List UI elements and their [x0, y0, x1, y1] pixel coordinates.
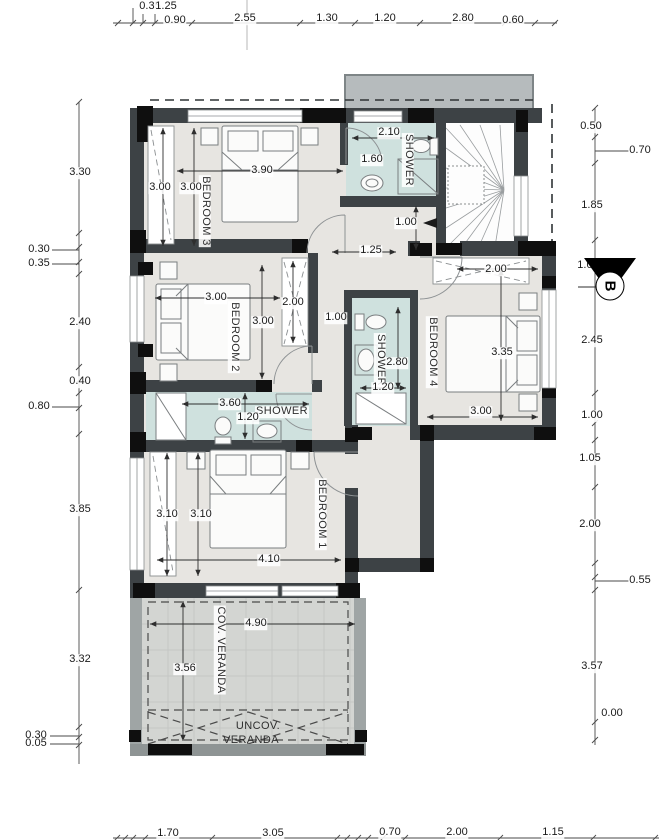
dim-right-5: 1.00: [580, 410, 603, 422]
dim-right-1: 0.70: [628, 145, 651, 157]
dim-left-6: 3.85: [68, 504, 91, 516]
dim-bedroom4-depth: 3.35: [490, 347, 513, 359]
uncov-veranda-label-line2: VERANDA: [222, 735, 280, 747]
dim-stair-width: 1.00: [394, 217, 417, 229]
section-marker-letter: B: [602, 281, 619, 292]
dim-bottom-0: 1.70: [156, 828, 179, 840]
dim-bedroom4-width: 3.00: [469, 406, 492, 418]
dim-top-6: 2.80: [451, 13, 474, 25]
dim-right-4: 2.45: [580, 335, 603, 347]
dim-left-5: 0.80: [27, 401, 50, 413]
dim-shower-mid-width: 1.20: [371, 382, 394, 394]
dim-right-0: 0.50: [579, 121, 602, 133]
bedroom-1-label: BEDROOM 1: [315, 478, 327, 550]
dim-left-2: 0.35: [27, 258, 50, 270]
dim-left-3: 2.40: [68, 317, 91, 329]
shower-bottom-label: SHOWER: [255, 406, 309, 418]
dim-right-10: 0.00: [600, 708, 623, 720]
dim-bedroom2-width: 3.00: [204, 292, 227, 304]
dim-left-7: 3.32: [68, 654, 91, 666]
dim-left-0: 3.30: [68, 167, 91, 179]
dim-right-7: 2.00: [578, 519, 601, 531]
dim-bedroom2-depth: 3.00: [251, 316, 274, 328]
section-marker-b: B: [578, 250, 648, 310]
dim-hall-opening: 1.25: [359, 245, 382, 257]
dim-right-8: 0.55: [628, 575, 651, 587]
dim-top-1: 1.25: [154, 1, 177, 13]
dim-left-9: 0.05: [24, 738, 47, 750]
dim-corridor-width: 1.00: [324, 312, 347, 324]
dim-bedroom2-closet-depth: 2.00: [281, 297, 304, 309]
dim-bedroom1-depth-b: 3.10: [189, 509, 212, 521]
dim-bedroom3-depth-a: 3.00: [148, 182, 171, 194]
dim-bottom-4: 1.15: [541, 827, 564, 839]
dim-top-4: 1.30: [315, 13, 338, 25]
dim-shower-top-width: 2.10: [377, 127, 400, 139]
dim-top-2: 0.90: [163, 15, 186, 27]
dim-left-1: 0.30: [27, 244, 50, 256]
floor-plan: BEDROOM 3 BEDROOM 2 BEDROOM 1 BEDROOM 4 …: [0, 0, 665, 840]
dim-bedroom3-width: 3.90: [250, 165, 273, 177]
dim-shower-bottom-depth: 1.20: [236, 412, 259, 424]
dim-bedroom3-depth-b: 3.00: [179, 182, 202, 194]
cov-veranda-label: COV. VERANDA: [214, 606, 226, 695]
dim-right-2: 1.85: [580, 200, 603, 212]
dim-right-9: 3.57: [580, 661, 603, 673]
bedroom-4-label: BEDROOM 4: [426, 316, 438, 388]
dim-shower-mid-depth: 2.80: [385, 357, 408, 369]
dim-left-4: 0.40: [68, 376, 91, 388]
dim-right-6: 1.05: [578, 453, 601, 465]
dim-veranda-depth: 3.56: [173, 663, 196, 675]
dim-bedroom4-closet-width: 2.00: [484, 264, 507, 276]
dim-bottom-3: 2.00: [445, 827, 468, 839]
shower-mid-label: SHOWER: [374, 333, 386, 387]
shower-top-label: SHOWER: [402, 133, 414, 187]
dim-shower-bottom-width: 3.60: [218, 398, 241, 410]
uncov-veranda-label-line1: UNCOV.: [235, 721, 281, 733]
dim-bottom-2: 0.70: [378, 827, 401, 839]
dim-top-3: 2.55: [233, 13, 256, 25]
dim-shower-top-depth: 1.60: [360, 154, 383, 166]
dim-top-5: 1.20: [373, 13, 396, 25]
dim-bedroom1-depth-a: 3.10: [155, 509, 178, 521]
floor-plan-drawing: [0, 0, 665, 840]
bedroom-2-label: BEDROOM 2: [228, 301, 240, 373]
dim-top-7: 0.60: [501, 15, 524, 27]
dim-bedroom1-width: 4.10: [257, 554, 280, 566]
dim-bottom-1: 3.05: [261, 828, 284, 840]
dim-veranda-width: 4.90: [244, 618, 267, 630]
